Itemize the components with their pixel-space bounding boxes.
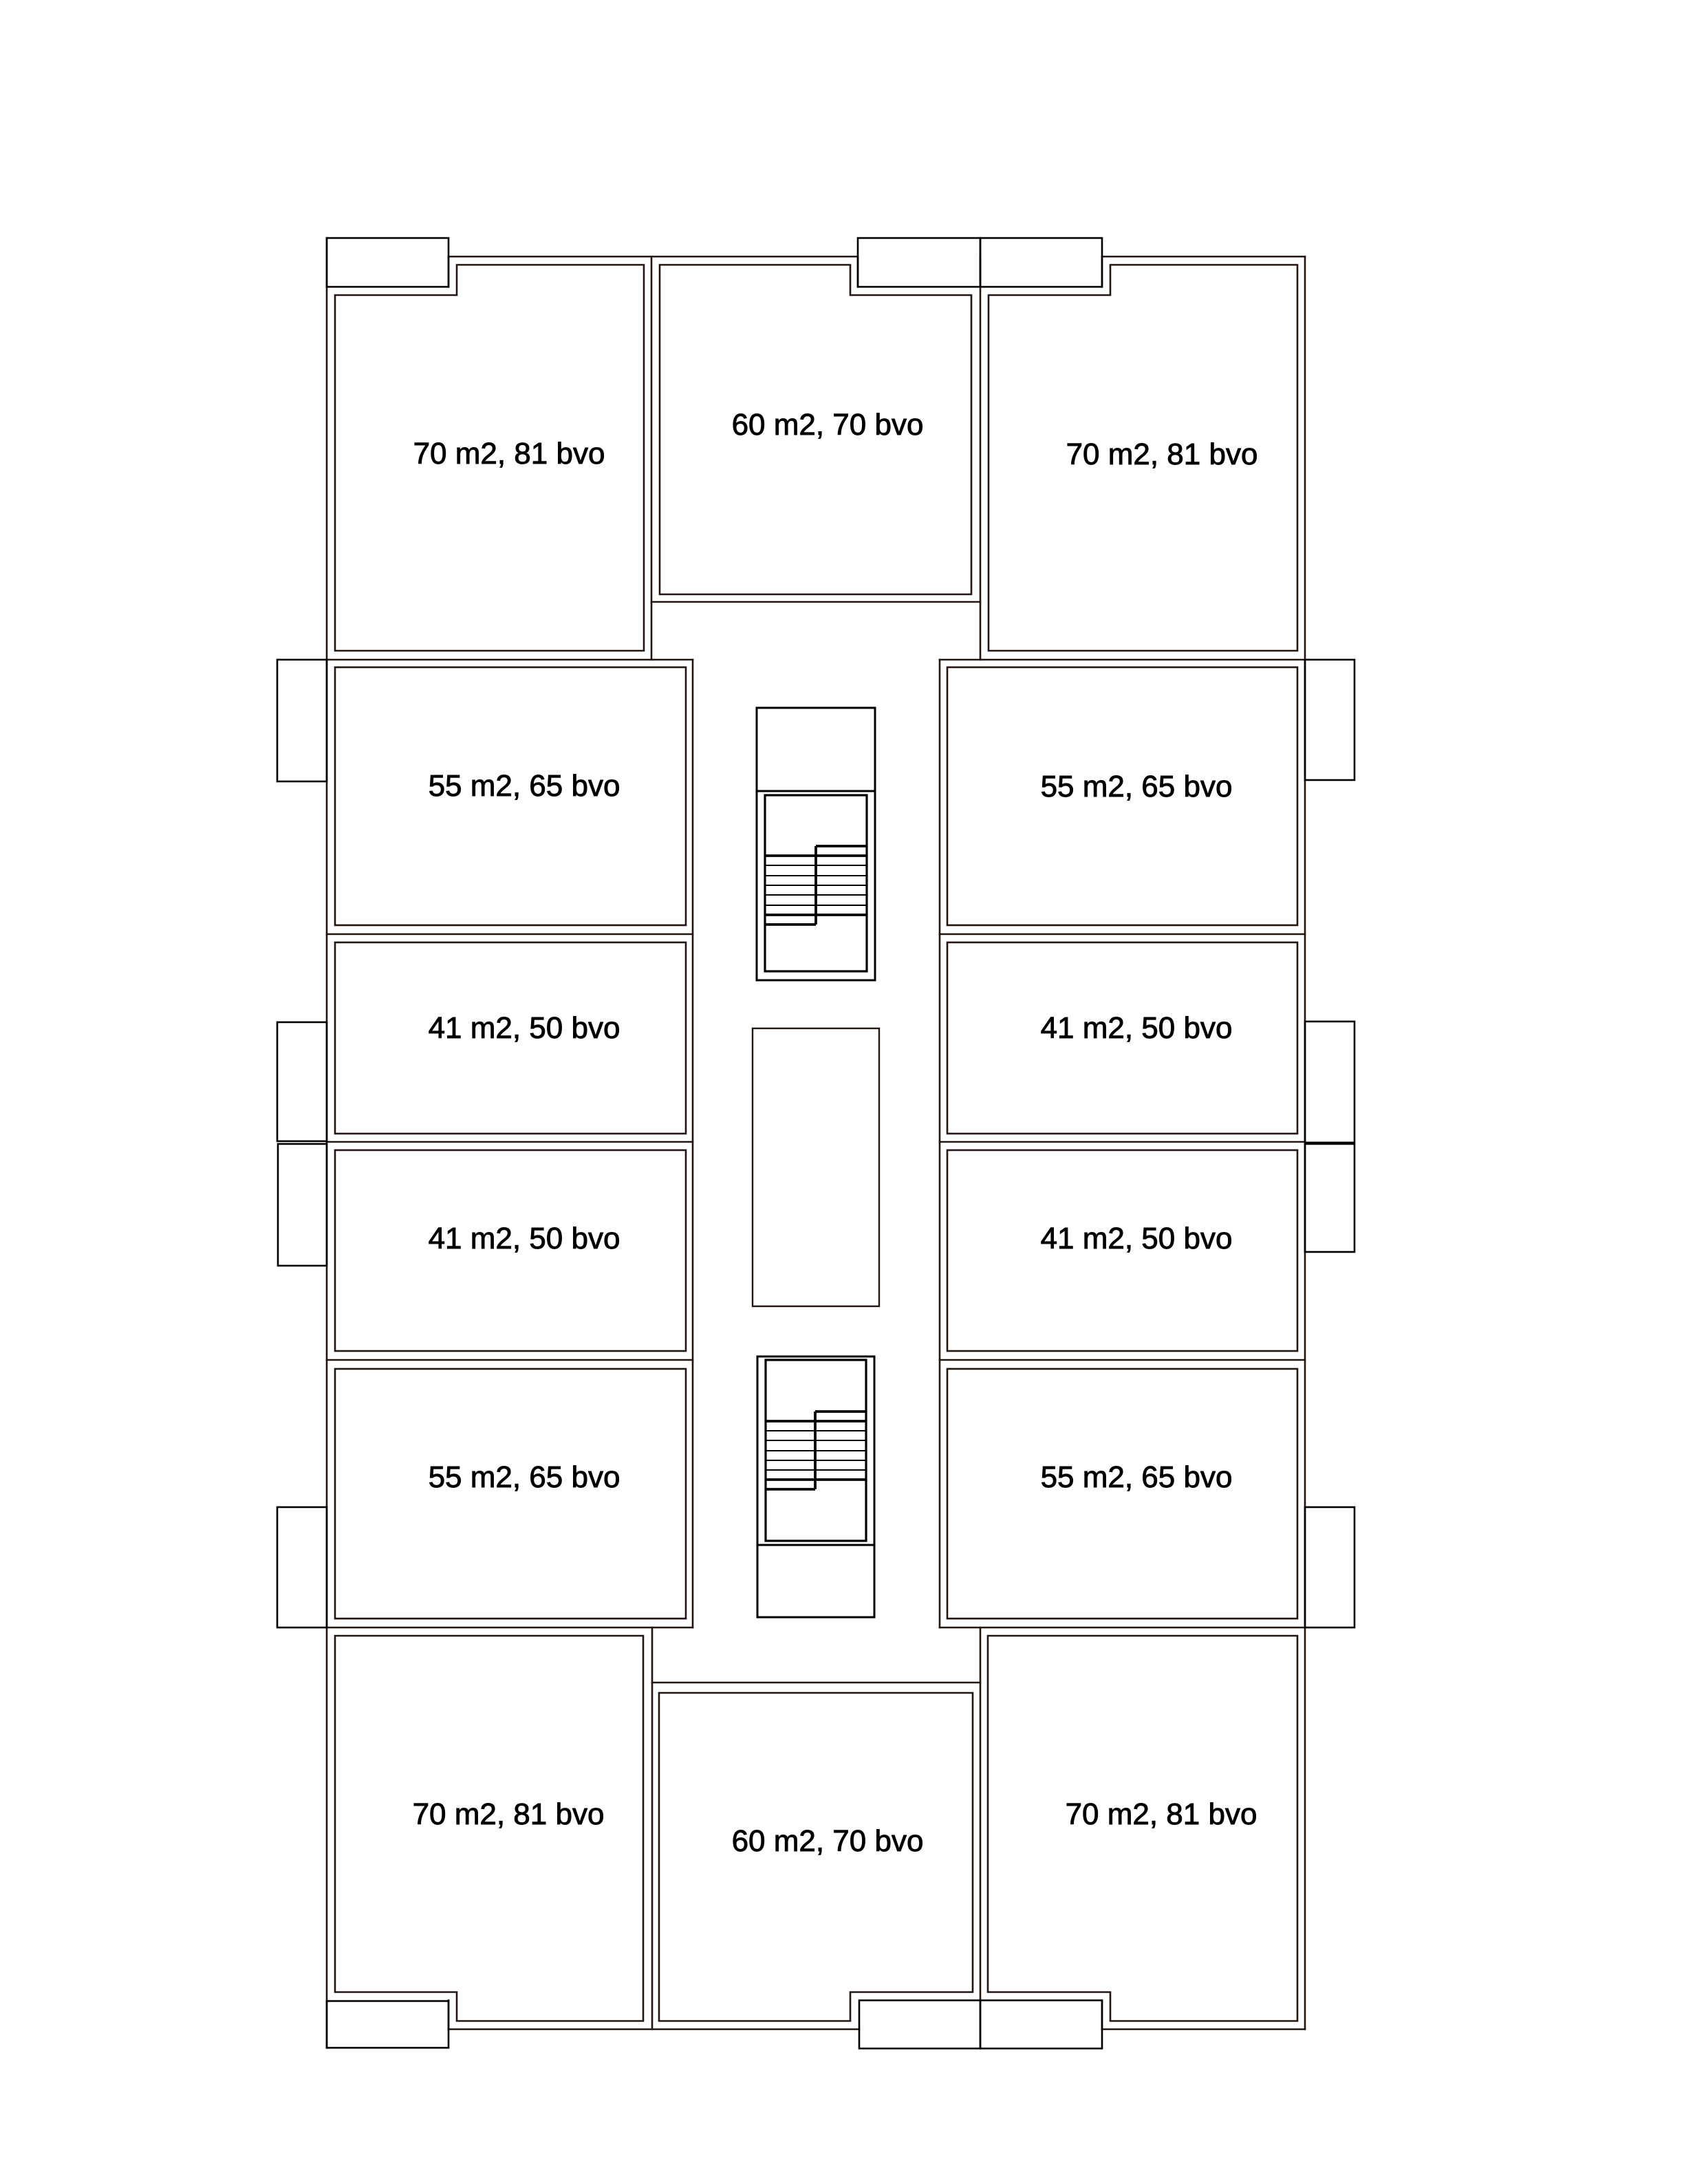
svg-text:41 m2, 50 bvo: 41 m2, 50 bvo — [1041, 1011, 1233, 1045]
svg-text:70 m2, 81 bvo: 70 m2, 81 bvo — [1066, 1797, 1257, 1831]
svg-text:70 m2, 81 bvo: 70 m2, 81 bvo — [413, 437, 605, 471]
svg-text:60 m2, 70 bvo: 60 m2, 70 bvo — [732, 1824, 924, 1858]
svg-text:55 m2, 65 bvo: 55 m2, 65 bvo — [1041, 770, 1233, 803]
svg-text:41 m2, 50 bvo: 41 m2, 50 bvo — [429, 1222, 620, 1255]
svg-text:60 m2, 70 bvo: 60 m2, 70 bvo — [732, 408, 924, 442]
svg-text:41 m2, 50 bvo: 41 m2, 50 bvo — [1041, 1222, 1233, 1255]
svg-text:41 m2, 50 bvo: 41 m2, 50 bvo — [429, 1011, 620, 1045]
svg-text:70 m2, 81 bvo: 70 m2, 81 bvo — [1066, 437, 1258, 471]
svg-text:55 m2, 65 bvo: 55 m2, 65 bvo — [429, 1460, 620, 1494]
svg-text:55 m2, 65 bvo: 55 m2, 65 bvo — [1041, 1460, 1233, 1494]
svg-text:70 m2, 81 bvo: 70 m2, 81 bvo — [413, 1797, 605, 1831]
svg-text:55 m2, 65 bvo: 55 m2, 65 bvo — [429, 769, 620, 803]
